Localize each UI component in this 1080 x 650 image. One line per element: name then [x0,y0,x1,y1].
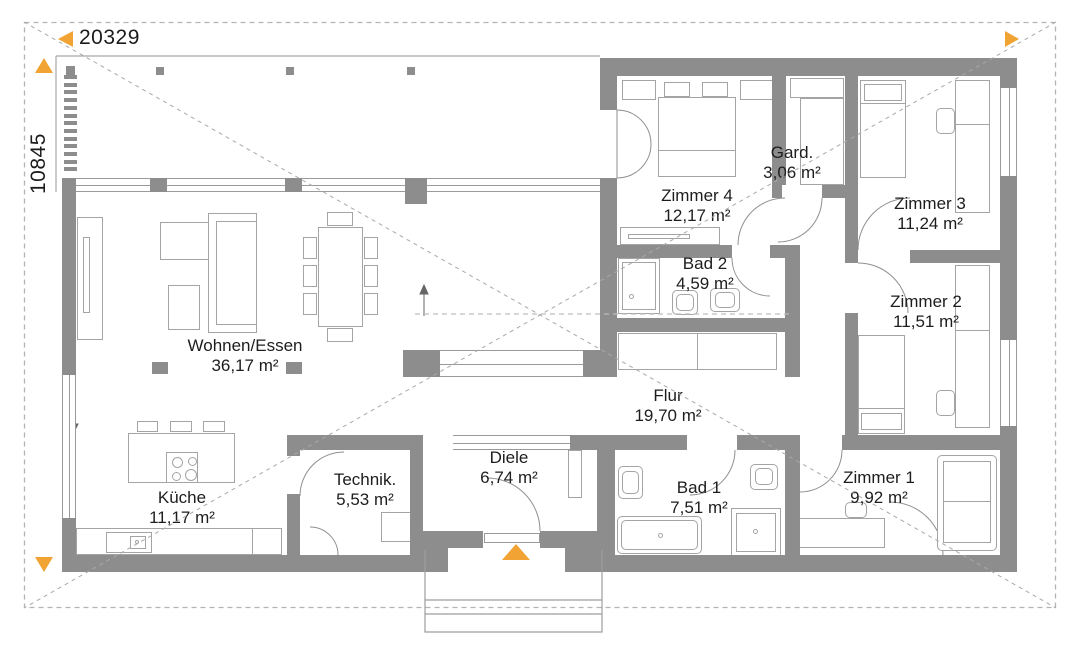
drain [658,533,663,538]
window [440,350,583,377]
stool [137,421,158,432]
sideboard [77,217,103,340]
chair [364,237,378,259]
basin-bowl [715,292,735,308]
room-area: 7,51 m² [619,498,779,518]
chair [327,212,353,226]
privacy-screen-slat [64,75,77,79]
room-area: 6,74 m² [429,468,589,488]
window [302,178,405,192]
water-heater [381,512,411,542]
wall-segment [62,518,76,555]
stool [170,421,192,432]
privacy-screen-slat [64,90,77,94]
burner [172,457,183,468]
window [62,375,76,518]
divider [955,124,990,125]
chair [936,108,955,134]
room-label-gard: Gard. 3,06 m² [712,143,872,182]
privacy-screen-slat [64,129,77,133]
chair [364,293,378,315]
room-label-zimmer4: Zimmer 4 12,17 m² [617,186,777,225]
wall-segment [600,58,1017,76]
blanket-line [858,408,905,409]
closet-shelf [790,78,844,98]
room-area: 3,06 m² [712,163,872,183]
toilet-bowl [676,294,694,311]
room-area: 36,17 m² [145,356,345,376]
room-label-wohnen-essen: Wohnen/Essen 36,17 m² [145,336,345,375]
sideboard-inner [83,237,90,313]
wall-segment [845,250,858,263]
privacy-screen-slat [64,121,77,125]
room-name: Küche [102,488,262,508]
room-area: 19,70 m² [588,406,748,426]
room-area: 11,17 m² [102,508,262,528]
room-label-diele: Diele 6,74 m² [429,448,589,487]
sofa-seat [216,221,257,325]
room-name: Zimmer 4 [617,186,777,206]
room-label-bad1: Bad 1 7,51 m² [619,478,779,517]
privacy-screen-slat [64,98,77,102]
width-dimension-label: 20329 [79,26,140,50]
pillow [861,413,902,430]
room-area: 11,24 m² [850,214,1010,234]
room-name: Diele [429,448,589,468]
room-label-technik: Technik. 5,53 m² [285,470,445,509]
window [427,178,600,192]
burner [185,469,197,481]
pillow [864,84,902,101]
wall-segment [448,531,483,548]
chair [303,237,317,259]
room-label-flur: Flur 19,70 m² [588,386,748,425]
room-name: Bad 1 [619,478,779,498]
dining-table [318,227,363,327]
desk-wardrobe [955,265,990,428]
privacy-screen-slat [64,83,77,87]
terrace-post [407,67,415,75]
wall-segment [600,178,617,192]
entrance-arrow-icon [502,544,530,560]
blanket-line [860,103,906,104]
room-name: Technik. [285,470,445,490]
room-name: Zimmer 3 [850,194,1010,214]
wall-segment [62,178,76,192]
wall-segment [842,435,1017,450]
room-name: Zimmer 1 [799,468,959,488]
privacy-screen-slat [64,152,77,156]
room-area: 9,92 m² [799,488,959,508]
room-name: Gard. [712,143,872,163]
height-dimension-label: 10845 [27,64,51,194]
wall-segment [540,531,602,548]
wall-segment [785,450,800,555]
room-label-zimmer2: Zimmer 2 11,51 m² [846,292,1006,331]
wall-segment [287,450,300,456]
window [1000,88,1017,176]
room-area: 11,51 m² [846,312,1006,332]
room-name: Zimmer 2 [846,292,1006,312]
wall-segment [285,178,302,192]
window [167,178,285,192]
width-arrow-icon [58,31,73,47]
wall-segment [403,350,440,377]
drain [629,294,634,299]
room-name: Wohnen/Essen [145,336,345,356]
stool [203,421,225,432]
privacy-screen-slat [64,137,77,141]
chair [936,390,955,416]
ottoman [168,285,200,330]
wall-segment [785,332,800,377]
chair [303,265,317,287]
drain [753,529,758,534]
privacy-screen-slat [64,167,77,171]
desk-board [628,234,690,239]
burner [188,457,197,466]
nightstand [622,80,656,100]
room-name: Bad 2 [625,254,785,274]
height-arrow-down-icon [35,557,53,572]
nightstand [740,80,774,100]
chair [303,293,317,315]
wall-segment [785,245,800,332]
desk [788,518,885,548]
window [1000,340,1017,426]
pillow [664,82,690,97]
wall-segment [602,555,1017,572]
wall-segment [583,350,617,377]
room-label-zimmer1: Zimmer 1 9,92 m² [799,468,959,507]
window [76,178,150,192]
privacy-screen-slat [64,144,77,148]
chair [364,265,378,287]
privacy-screen-slat [64,114,77,118]
terrace-post [66,66,75,75]
room-name: Flur [588,386,748,406]
dishwasher [252,528,282,555]
wall-segment [150,178,167,192]
terrace-post [286,67,294,75]
wall-segment [600,192,617,245]
room-area: 4,59 m² [625,274,785,294]
wall-segment [600,58,617,110]
wall-segment [910,250,1017,263]
room-label-bad2: Bad 2 4,59 m² [625,254,785,293]
privacy-screen-slat [64,160,77,164]
wall-segment [62,555,423,572]
wall-segment [597,450,615,555]
wall-segment [287,435,423,450]
cabinet-divider [697,334,698,369]
entrance-door-leaf [484,533,540,543]
wall-segment [845,313,858,435]
faucet [135,540,139,544]
pillow [702,82,728,97]
burner [172,472,181,481]
wall-segment [405,178,427,204]
wall-segment [600,318,800,332]
terrace-post [156,67,164,75]
room-area: 5,53 m² [285,490,445,510]
room-label-kueche: Küche 11,17 m² [102,488,262,527]
wall-segment [62,192,76,375]
wall-segment [737,435,800,450]
room-area: 12,17 m² [617,206,777,226]
room-label-zimmer3: Zimmer 3 11,24 m² [850,194,1010,233]
privacy-screen-slat [64,106,77,110]
wall-segment [423,531,448,572]
width-arrow-right-icon [1005,31,1019,47]
floor-plan: 20329 10845 Wohnen/Essen 36,17 m² Küche … [0,0,1080,650]
wall-segment [600,258,617,350]
